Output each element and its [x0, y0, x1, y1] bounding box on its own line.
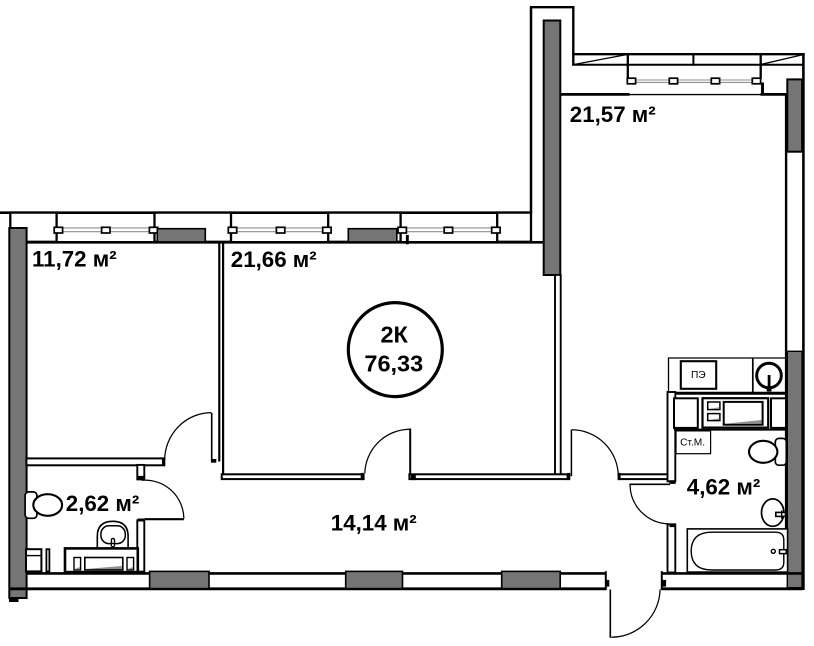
- svg-text:2,62 м²: 2,62 м²: [66, 491, 140, 516]
- svg-text:21,66 м²: 21,66 м²: [231, 247, 317, 272]
- svg-text:4,62 м²: 4,62 м²: [687, 474, 761, 499]
- svg-text:11,72 м²: 11,72 м²: [32, 247, 117, 272]
- svg-text:Ст.М.: Ст.М.: [680, 438, 705, 449]
- svg-text:ПЭ: ПЭ: [691, 370, 706, 381]
- svg-text:14,14 м²: 14,14 м²: [331, 510, 417, 535]
- svg-text:76,33: 76,33: [364, 351, 423, 377]
- svg-text:21,57 м²: 21,57 м²: [570, 102, 656, 127]
- svg-text:2К: 2К: [380, 321, 408, 347]
